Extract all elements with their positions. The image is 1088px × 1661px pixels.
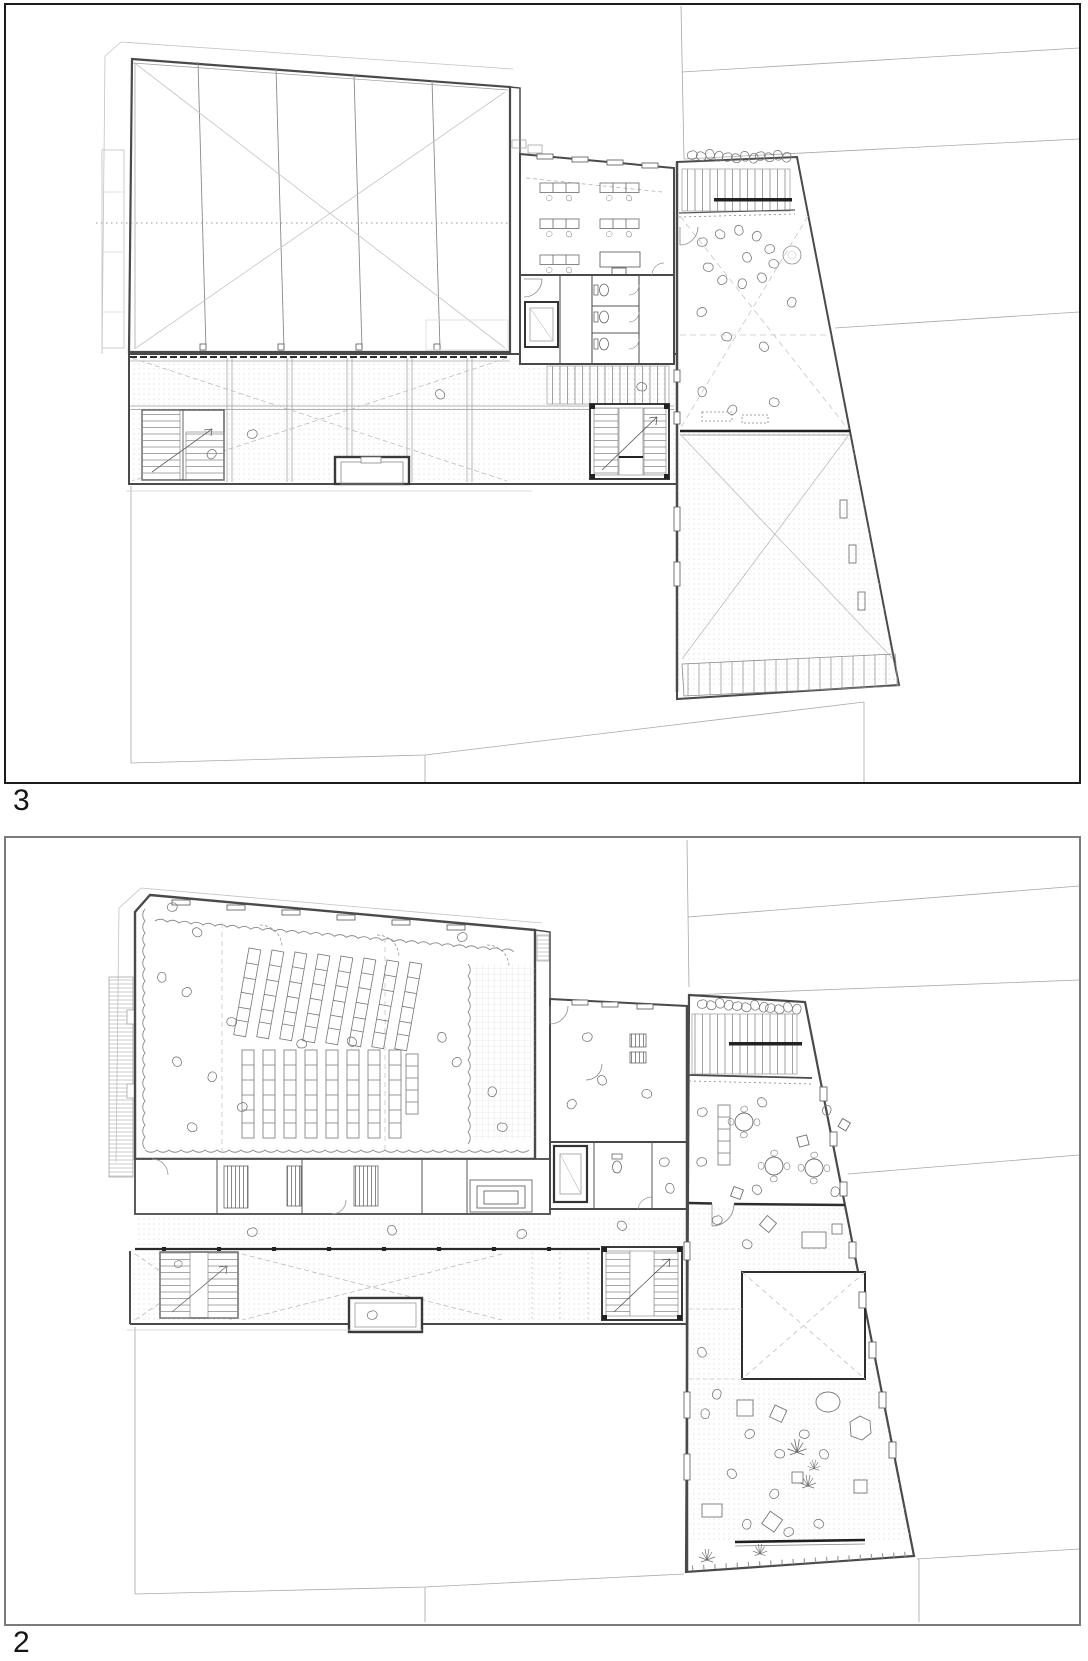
roof-terrace bbox=[674, 433, 898, 696]
floor-plan-panel-2 bbox=[4, 836, 1081, 1626]
corridor bbox=[135, 1216, 687, 1251]
podium-steps bbox=[470, 1180, 532, 1212]
exterior-gallery bbox=[109, 977, 133, 1177]
garden-wing bbox=[684, 995, 914, 1572]
rooms-strip bbox=[135, 1159, 550, 1214]
entry-hall bbox=[535, 930, 687, 1142]
office-room bbox=[510, 87, 674, 275]
floor-void bbox=[742, 1272, 865, 1379]
floor-plan-panel-3 bbox=[4, 3, 1081, 784]
library-hall bbox=[109, 888, 542, 1177]
skylight-hall bbox=[96, 42, 513, 354]
floor-label-2: 2 bbox=[13, 1628, 30, 1658]
stair-core bbox=[590, 404, 669, 479]
floor-label-3: 3 bbox=[13, 786, 30, 816]
garden-stair bbox=[689, 1014, 812, 1084]
toilet-block bbox=[520, 263, 674, 364]
terrace-stair-right bbox=[602, 1247, 682, 1320]
gallery-stair bbox=[142, 410, 224, 480]
floor-plan-drawing-level-2 bbox=[6, 838, 1079, 1624]
roof-hatch-box bbox=[335, 457, 409, 484]
terrace-stair-left bbox=[160, 1252, 238, 1318]
skylight-box bbox=[349, 1298, 422, 1332]
south-gallery bbox=[126, 354, 677, 491]
terrace-band bbox=[127, 1247, 687, 1332]
reading-grid-area bbox=[472, 964, 535, 1139]
floor-plan-drawing-level-3 bbox=[6, 5, 1079, 782]
wc-lift-block bbox=[550, 1142, 687, 1209]
open-floor bbox=[684, 1208, 911, 1540]
